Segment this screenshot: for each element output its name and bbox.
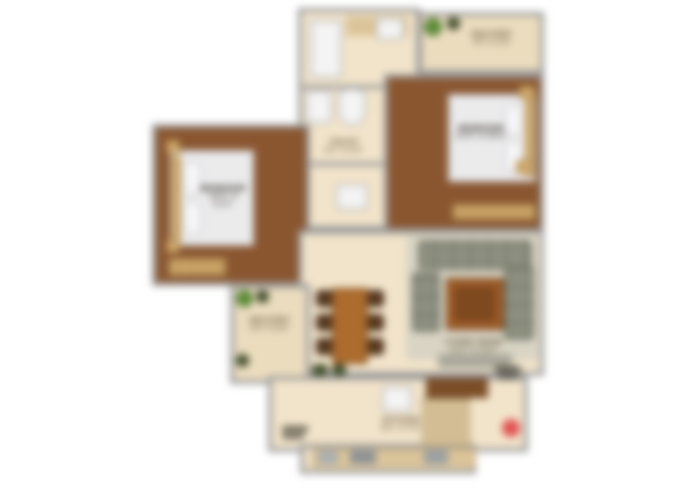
plant-icon bbox=[256, 290, 269, 303]
balcony-bottom-dims-text: 4'0" X 6'6" bbox=[236, 325, 304, 333]
small-text-marks bbox=[282, 434, 304, 439]
small-text-marks bbox=[495, 366, 521, 372]
bathroom-dims-text: 5'0" X 4'0" bbox=[302, 147, 386, 155]
bedroom-right: BEDROOM 11'0" X 10'0" bbox=[384, 74, 544, 232]
bedroom-right-dims-text: 11'0" X 10'0" bbox=[454, 133, 508, 141]
balcony-top: BALCONY 7'6" X 3'6" bbox=[418, 12, 544, 74]
balcony-top-label-text: BALCONY bbox=[450, 30, 534, 39]
entry-marker-icon bbox=[502, 419, 520, 437]
coffee-table-icon bbox=[446, 278, 504, 330]
kitchen-dims-text: 8'0" X 7'0" bbox=[368, 425, 434, 433]
floor-plan: TOILET 5'0" X 4'0" BALCONY 7'6" X 3'6" B… bbox=[0, 0, 700, 488]
double-bed-icon: BEDROOM 10'6" X 11'0" bbox=[170, 150, 254, 246]
bathroom-label-text: TOILET bbox=[302, 138, 386, 147]
wardrobe-icon bbox=[452, 204, 536, 220]
nightstand-icon bbox=[166, 140, 180, 153]
sectional-sofa-icon bbox=[412, 272, 440, 332]
toilet-icon bbox=[338, 88, 366, 126]
bed-headboard bbox=[172, 155, 181, 241]
bedroom-left-dims-text: 10'6" X 11'0" bbox=[198, 193, 248, 209]
washbasin-icon bbox=[306, 90, 332, 124]
nightstand-icon bbox=[519, 86, 535, 99]
bedroom-left-label: BEDROOM 10'6" X 11'0" bbox=[198, 184, 248, 209]
sink-icon bbox=[318, 451, 338, 464]
coffee-table-top bbox=[454, 286, 496, 322]
wardrobe-icon bbox=[168, 258, 226, 276]
balcony-bottom-label-text: BALCONY bbox=[236, 316, 304, 325]
balcony-bottom-label: BALCONY 4'0" X 6'6" bbox=[236, 316, 304, 332]
shower-icon bbox=[310, 20, 342, 78]
washing-machine-icon bbox=[376, 18, 404, 40]
dining-table-icon bbox=[332, 288, 368, 364]
plant-icon bbox=[312, 364, 328, 376]
plant-icon bbox=[236, 354, 249, 367]
bathroom-label: TOILET 5'0" X 4'0" bbox=[302, 138, 386, 154]
plant-icon bbox=[236, 290, 253, 307]
balcony-top-label: BALCONY 7'6" X 3'6" bbox=[450, 30, 534, 46]
plant-icon bbox=[424, 18, 442, 36]
small-text-marks bbox=[498, 374, 518, 379]
living-room-label: LIVING ROOM 12'0" X 10'6" bbox=[432, 338, 516, 354]
balcony-bottom: BALCONY 4'0" X 6'6" bbox=[230, 284, 310, 384]
stove-icon bbox=[350, 450, 376, 464]
nightstand-icon bbox=[516, 160, 534, 174]
plant-icon bbox=[447, 17, 460, 30]
small-text-marks bbox=[282, 426, 308, 432]
bedroom-left: BEDROOM 10'6" X 11'0" bbox=[152, 124, 310, 286]
living-room-label-text: LIVING ROOM bbox=[432, 338, 516, 347]
floor-plan-blurred-canvas: TOILET 5'0" X 4'0" BALCONY 7'6" X 3'6" B… bbox=[0, 0, 700, 488]
kitchen-cabinet-icon bbox=[426, 378, 488, 398]
kitchen-label-text: KITCHEN bbox=[368, 416, 434, 425]
bedroom-right-label: BEDROOM 11'0" X 10'0" bbox=[454, 124, 508, 141]
living-room: LIVING ROOM 12'0" X 10'6" bbox=[298, 230, 544, 376]
sectional-sofa-icon bbox=[504, 266, 534, 340]
nightstand-icon bbox=[166, 240, 180, 253]
plant-icon bbox=[332, 364, 346, 376]
sink-icon bbox=[382, 386, 412, 412]
kitchen-label: KITCHEN 8'0" X 7'0" bbox=[368, 416, 434, 432]
appliance-icon bbox=[424, 450, 448, 464]
balcony-top-dims-text: 7'6" X 3'6" bbox=[450, 39, 534, 47]
vanity-icon bbox=[336, 184, 368, 210]
